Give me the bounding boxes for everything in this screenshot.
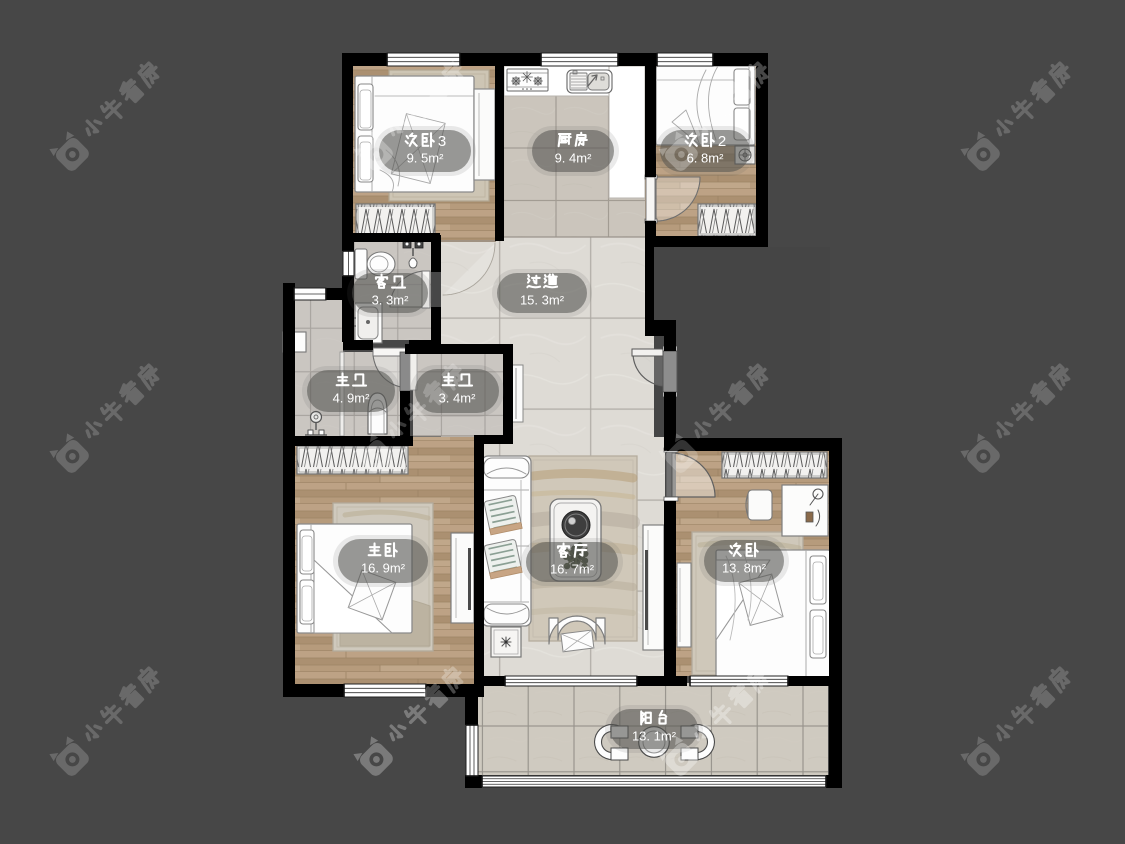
svg-text:4. 9m²: 4. 9m² xyxy=(333,391,371,406)
svg-text:3: 3 xyxy=(438,133,446,150)
svg-text:16. 7m²: 16. 7m² xyxy=(550,562,595,577)
svg-text:13. 8m²: 13. 8m² xyxy=(722,561,767,576)
svg-text:9. 5m²: 9. 5m² xyxy=(407,151,445,166)
svg-text:2: 2 xyxy=(718,133,726,150)
svg-text:15. 3m²: 15. 3m² xyxy=(520,293,565,308)
svg-text:9. 4m²: 9. 4m² xyxy=(555,151,593,166)
svg-text:16. 9m²: 16. 9m² xyxy=(361,561,406,576)
svg-text:3. 3m²: 3. 3m² xyxy=(372,293,410,308)
svg-text:13. 1m²: 13. 1m² xyxy=(632,729,677,744)
